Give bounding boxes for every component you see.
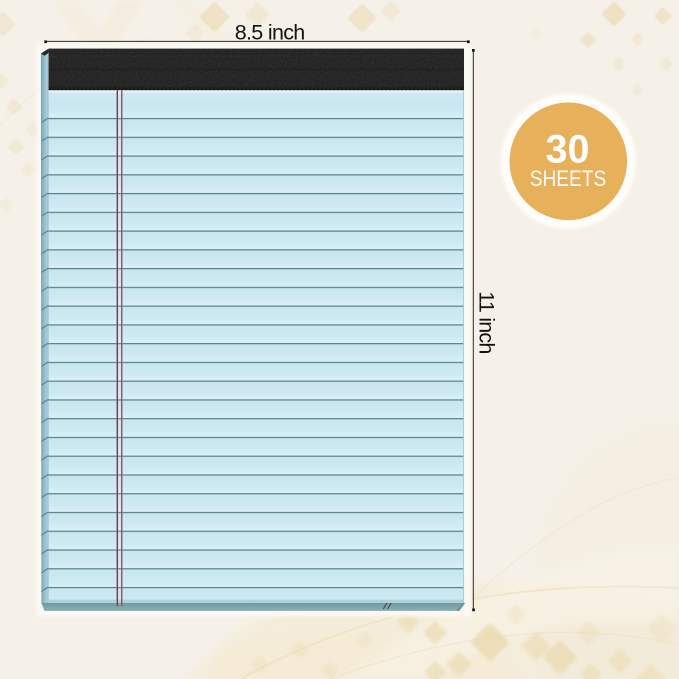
svg-text:SHEETS: SHEETS (530, 166, 607, 191)
svg-text:30: 30 (546, 127, 590, 171)
svg-text:11 inch: 11 inch (474, 291, 498, 354)
svg-text:8.5 inch: 8.5 inch (235, 20, 306, 44)
